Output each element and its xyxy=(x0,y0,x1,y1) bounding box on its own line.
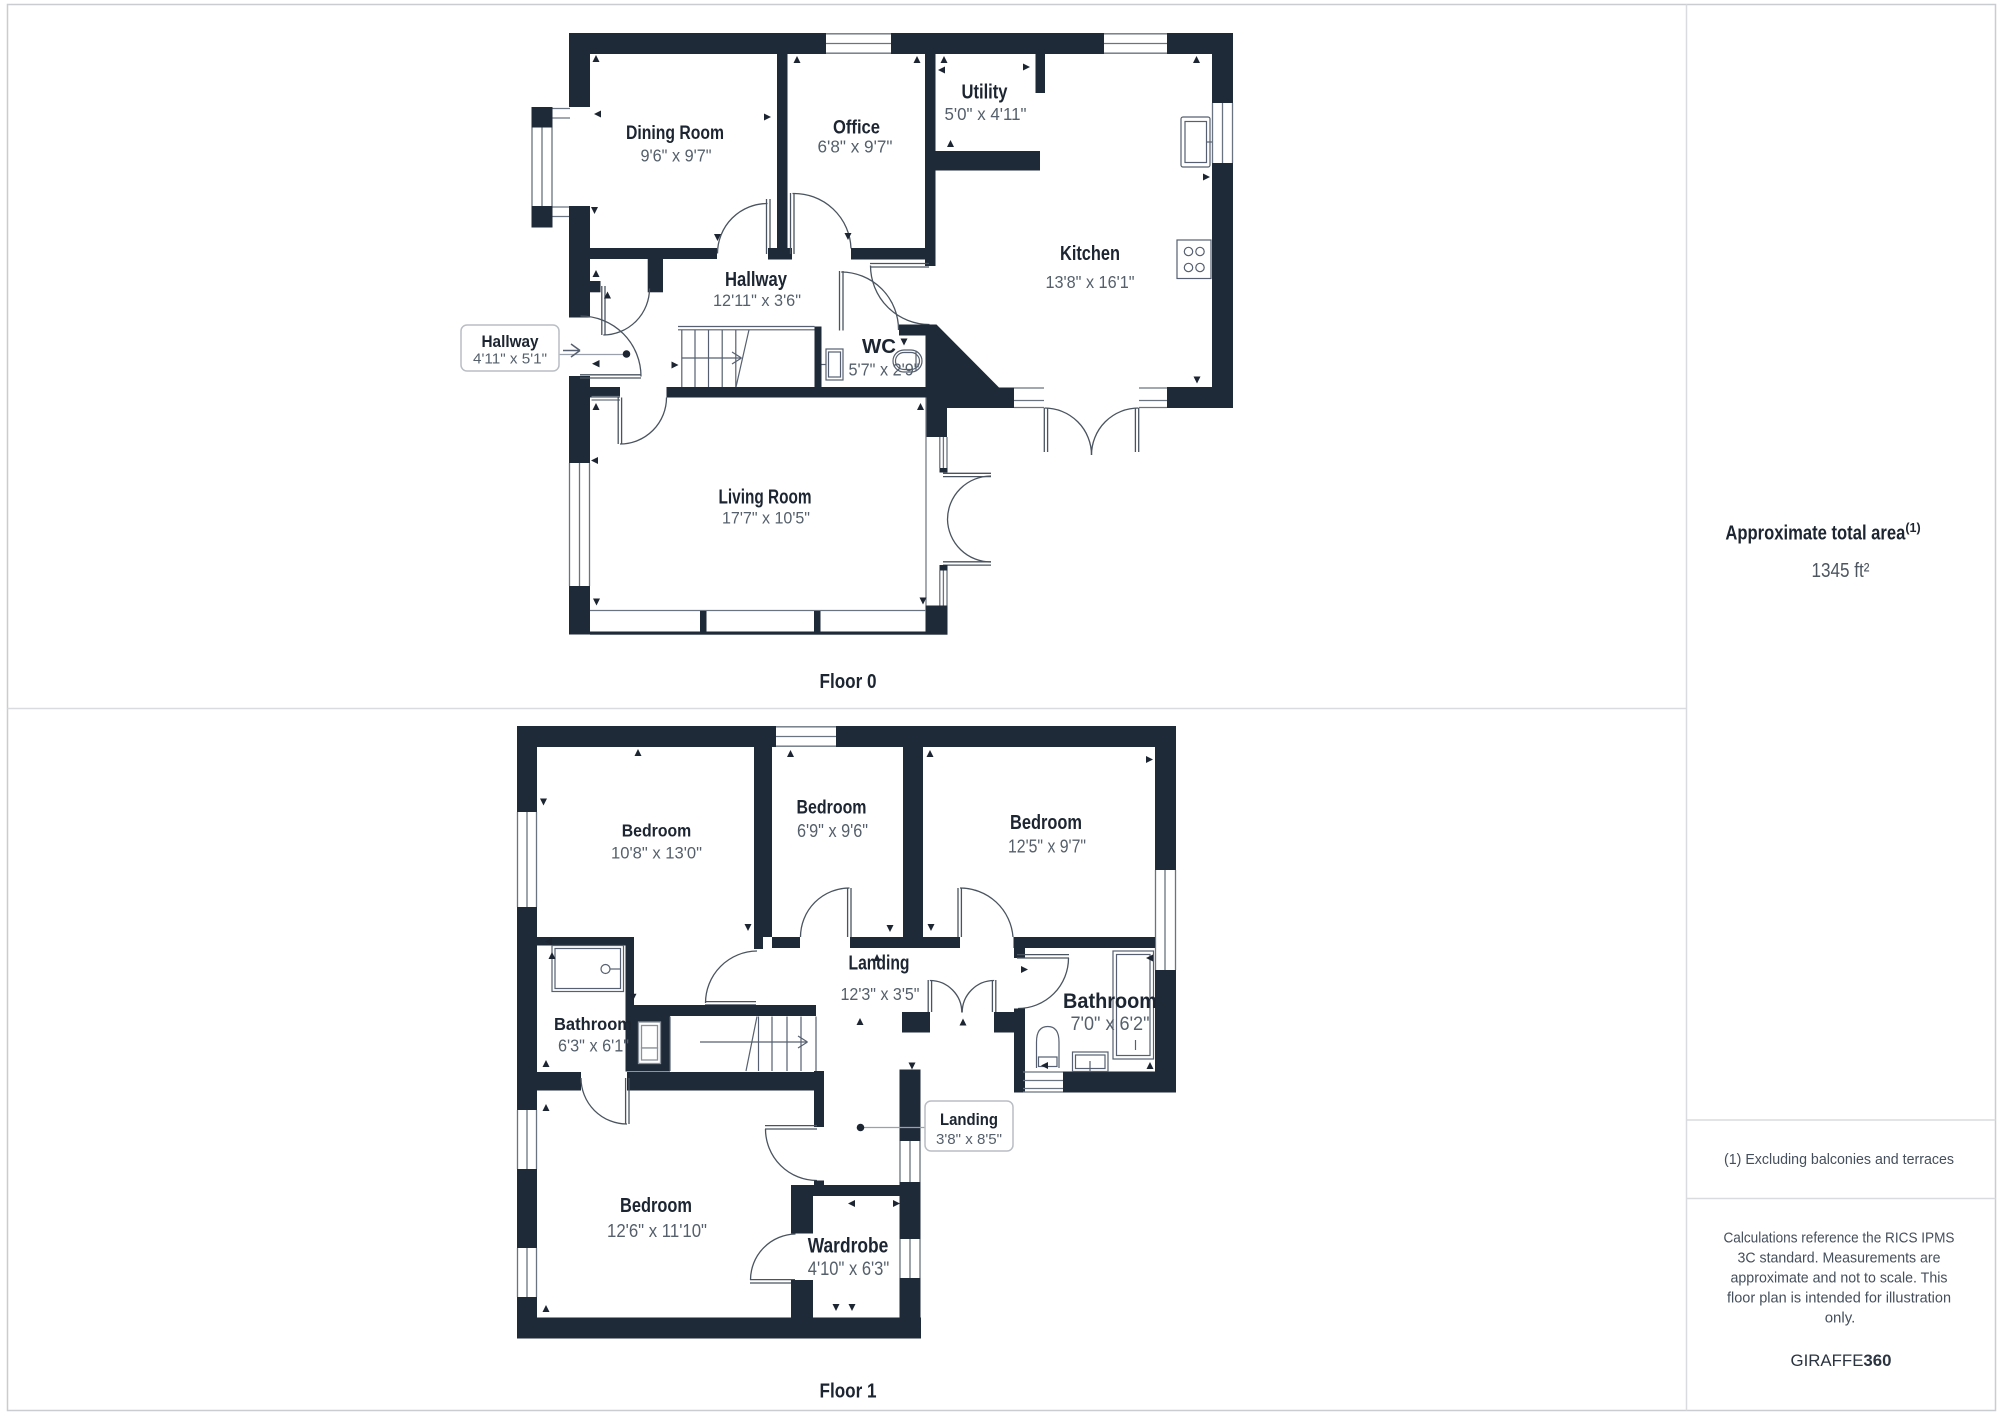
svg-text:GIRAFFE360: GIRAFFE360 xyxy=(1791,1352,1892,1370)
svg-text:Bathroom: Bathroom xyxy=(554,1014,632,1034)
svg-text:Bedroom: Bedroom xyxy=(797,798,867,819)
svg-text:Hallway: Hallway xyxy=(482,332,539,351)
svg-text:Hallway: Hallway xyxy=(725,269,788,291)
svg-text:Wardrobe: Wardrobe xyxy=(808,1235,889,1258)
svg-text:Bedroom: Bedroom xyxy=(620,1195,692,1217)
svg-text:12'5" x 9'7": 12'5" x 9'7" xyxy=(1008,837,1086,857)
svg-text:10'8" x 13'0": 10'8" x 13'0" xyxy=(611,844,702,863)
svg-text:Approximate total area(1): Approximate total area(1) xyxy=(1725,521,1920,545)
svg-text:approximate and not to scale.: approximate and not to scale. This xyxy=(1731,1270,1948,1287)
svg-text:3C standard. Measurements are: 3C standard. Measurements are xyxy=(1738,1250,1941,1267)
svg-text:6'3" x 6'1": 6'3" x 6'1" xyxy=(558,1036,629,1056)
svg-text:Office: Office xyxy=(833,117,880,139)
svg-text:Bedroom: Bedroom xyxy=(622,821,692,841)
svg-text:Utility: Utility xyxy=(962,82,1009,104)
svg-text:only.: only. xyxy=(1825,1310,1856,1327)
svg-text:Kitchen: Kitchen xyxy=(1060,243,1120,265)
svg-text:WC: WC xyxy=(862,336,896,358)
svg-text:Floor 0: Floor 0 xyxy=(820,671,877,693)
svg-text:13'8" x 16'1": 13'8" x 16'1" xyxy=(1046,272,1135,292)
svg-text:Dining Room: Dining Room xyxy=(626,122,724,144)
svg-text:12'11" x 3'6": 12'11" x 3'6" xyxy=(713,291,801,310)
svg-text:Bedroom: Bedroom xyxy=(1010,812,1082,834)
svg-text:6'9" x 9'6": 6'9" x 9'6" xyxy=(797,821,868,841)
svg-text:1345 ft²: 1345 ft² xyxy=(1812,560,1870,582)
svg-text:5'7" x 2'9": 5'7" x 2'9" xyxy=(849,360,920,380)
svg-text:Landing: Landing xyxy=(940,1110,998,1129)
svg-text:3'8" x 8'5": 3'8" x 8'5" xyxy=(936,1131,1002,1148)
svg-text:9'6" x 9'7": 9'6" x 9'7" xyxy=(641,146,712,166)
svg-text:12'6" x 11'10": 12'6" x 11'10" xyxy=(607,1221,707,1241)
svg-text:Calculations reference the RIC: Calculations reference the RICS IPMS xyxy=(1724,1230,1955,1247)
svg-text:Floor 1: Floor 1 xyxy=(820,1381,877,1403)
svg-text:Bathroom: Bathroom xyxy=(1063,990,1157,1013)
svg-text:Landing: Landing xyxy=(849,953,910,975)
svg-text:floor plan is intended for ill: floor plan is intended for illustration xyxy=(1727,1290,1951,1307)
svg-text:4'11" x 5'1": 4'11" x 5'1" xyxy=(473,351,547,368)
svg-text:12'3" x 3'5": 12'3" x 3'5" xyxy=(841,984,920,1004)
svg-text:5'0" x 4'11": 5'0" x 4'11" xyxy=(945,104,1027,124)
svg-text:7'0" x 6'2": 7'0" x 6'2" xyxy=(1071,1014,1150,1035)
svg-text:Living Room: Living Room xyxy=(719,487,812,509)
svg-text:17'7" x 10'5": 17'7" x 10'5" xyxy=(722,509,810,528)
svg-text:4'10" x 6'3": 4'10" x 6'3" xyxy=(808,1259,890,1280)
svg-text:(1) Excluding balconies and te: (1) Excluding balconies and terraces xyxy=(1724,1151,1954,1168)
svg-text:6'8" x 9'7": 6'8" x 9'7" xyxy=(818,137,893,157)
